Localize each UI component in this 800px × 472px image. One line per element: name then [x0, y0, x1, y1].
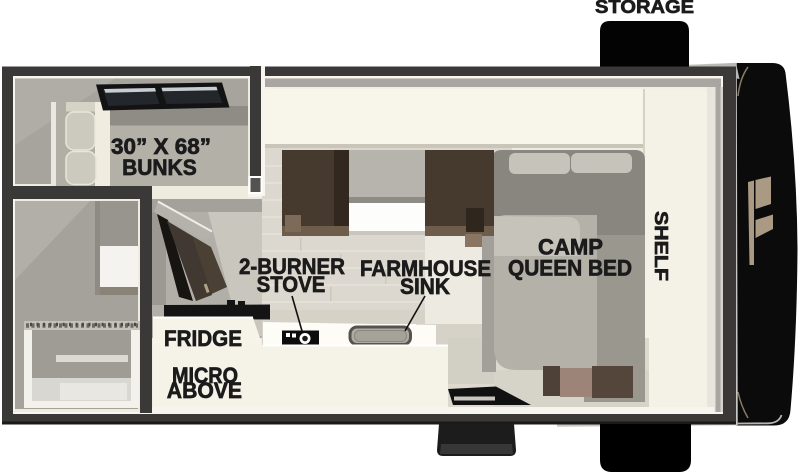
- svg-text:BUNKS: BUNKS: [122, 155, 197, 180]
- svg-text:ABOVE: ABOVE: [167, 378, 242, 403]
- svg-text:STOVE: STOVE: [257, 272, 326, 297]
- svg-text:SINK: SINK: [400, 274, 450, 299]
- svg-text:SHELF: SHELF: [651, 211, 671, 281]
- svg-text:STORAGE: STORAGE: [595, 0, 694, 17]
- svg-text:FRIDGE: FRIDGE: [164, 326, 242, 351]
- svg-text:QUEEN BED: QUEEN BED: [508, 256, 632, 281]
